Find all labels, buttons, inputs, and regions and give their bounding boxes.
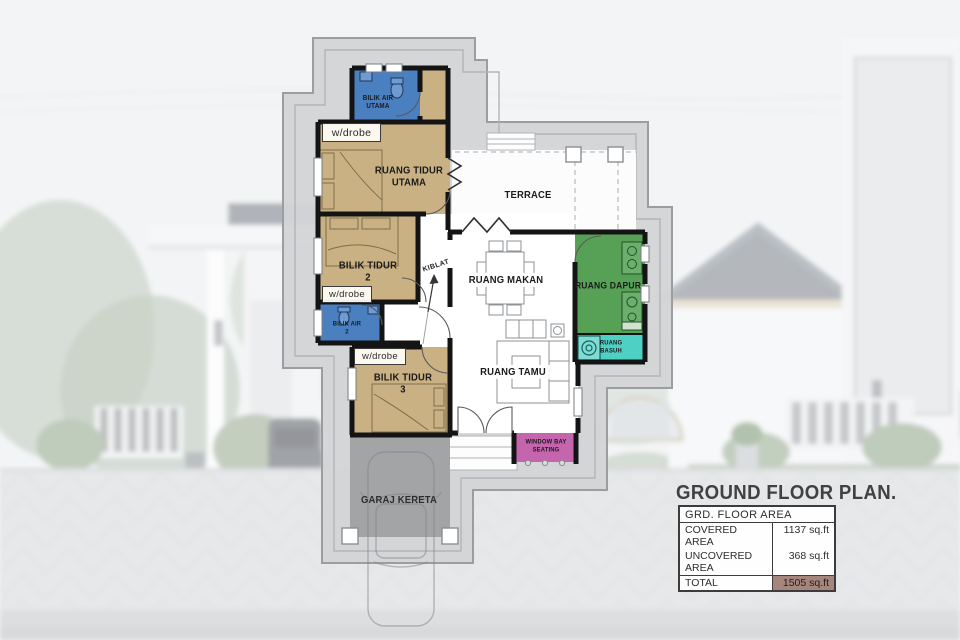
room-closet-strip [420, 68, 448, 120]
room-bilik-tidur-2 [318, 214, 418, 302]
hall-floor [382, 302, 420, 345]
room-ruang-tidur-utama [318, 122, 450, 214]
total-label: TOTAL [680, 576, 772, 590]
floor-plan-poster: BILIK AIRUTAMA RUANG TIDURUTAMA BILIK TI… [0, 0, 960, 640]
room-bilik-tidur-3 [352, 347, 450, 435]
total-value: 1505 sq.ft [772, 576, 834, 590]
uncovered-area-value: 368 sq.ft [772, 549, 834, 575]
uncovered-area-label: UNCOVERED AREA [680, 549, 772, 575]
entry-steps [447, 436, 517, 470]
area-table-header: GRD. FLOOR AREA [680, 507, 834, 523]
terrace-steps [487, 133, 535, 150]
area-table: GRD. FLOOR AREA COVERED AREA 1137 sq.ft … [678, 505, 836, 592]
room-window-bay [514, 433, 576, 462]
covered-area-value: 1137 sq.ft [772, 523, 834, 549]
washing-machine-icon [578, 336, 600, 360]
covered-area-label: COVERED AREA [680, 523, 772, 549]
page-title: GROUND FLOOR PLAN. [676, 482, 897, 505]
